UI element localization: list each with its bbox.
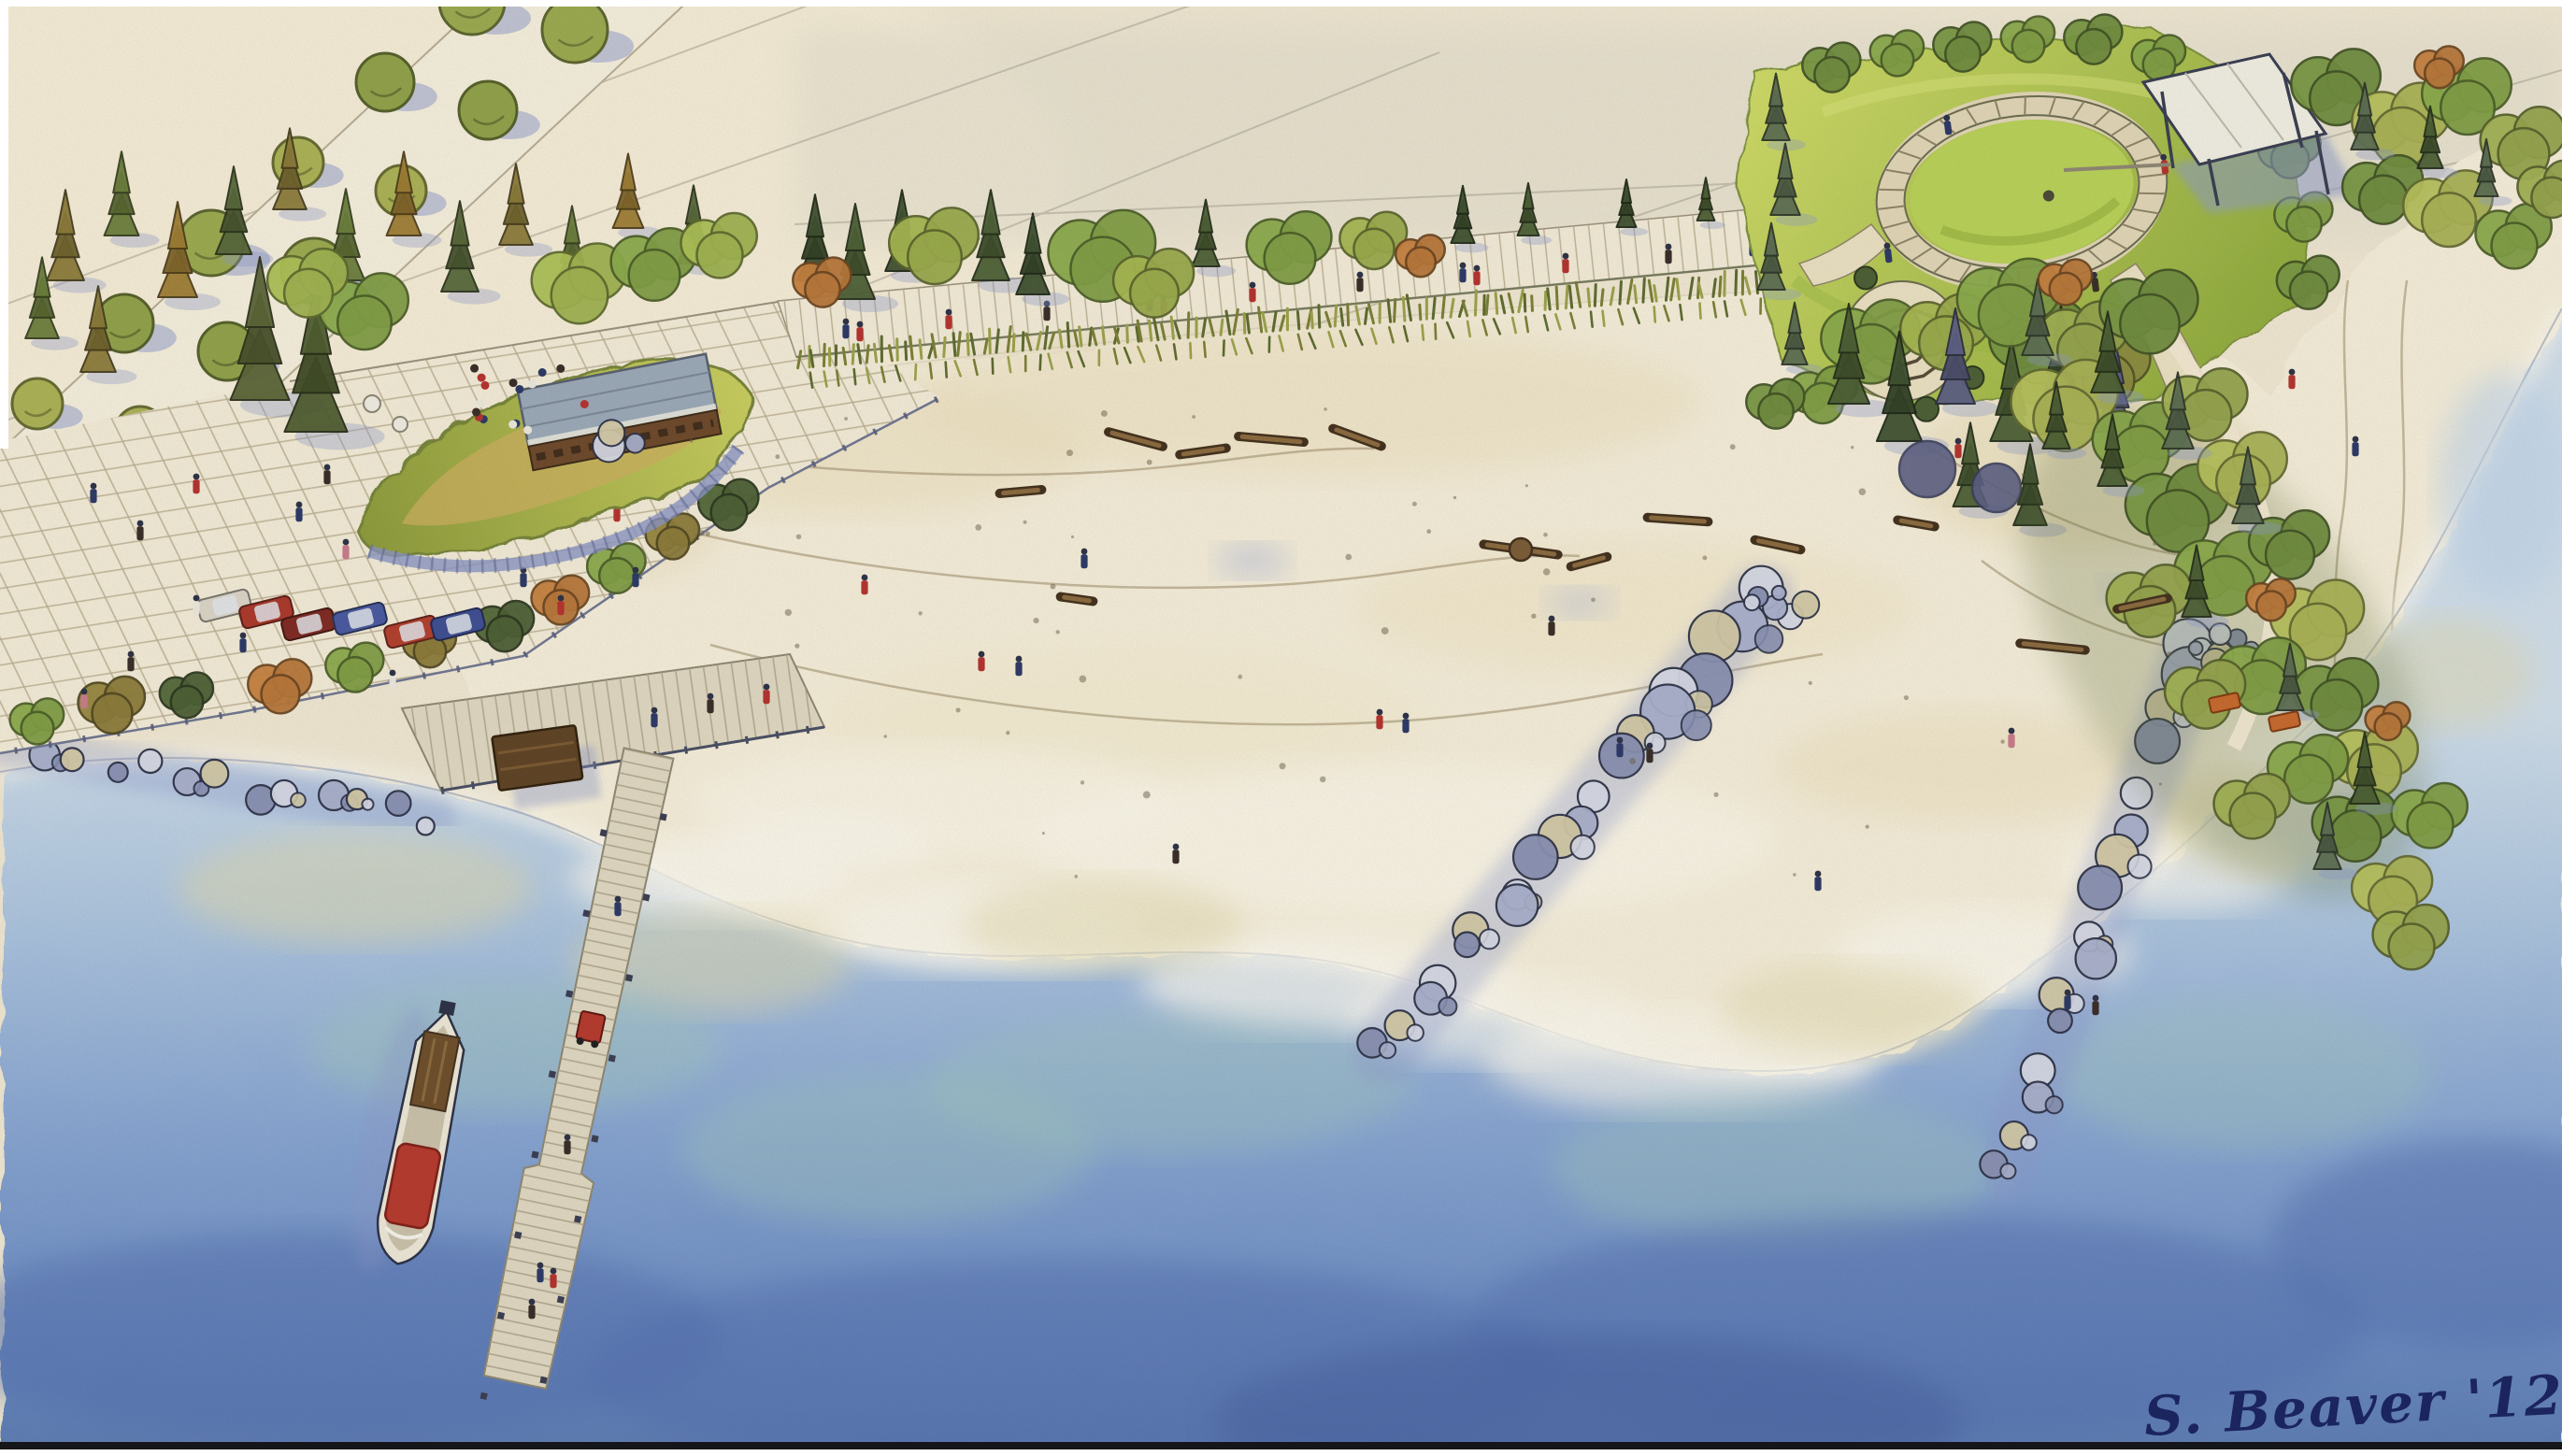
bottom-margin <box>0 1449 2562 1456</box>
painting-canvas: S. Beaver '12 <box>0 0 2562 1456</box>
top-margin <box>0 0 2562 7</box>
watercolor-waterfront-park-rendering: S. Beaver '12 <box>0 0 2562 1456</box>
left-margin <box>0 0 8 449</box>
bottom-rule <box>0 1442 2562 1449</box>
watercolor-grain <box>0 0 2562 1456</box>
